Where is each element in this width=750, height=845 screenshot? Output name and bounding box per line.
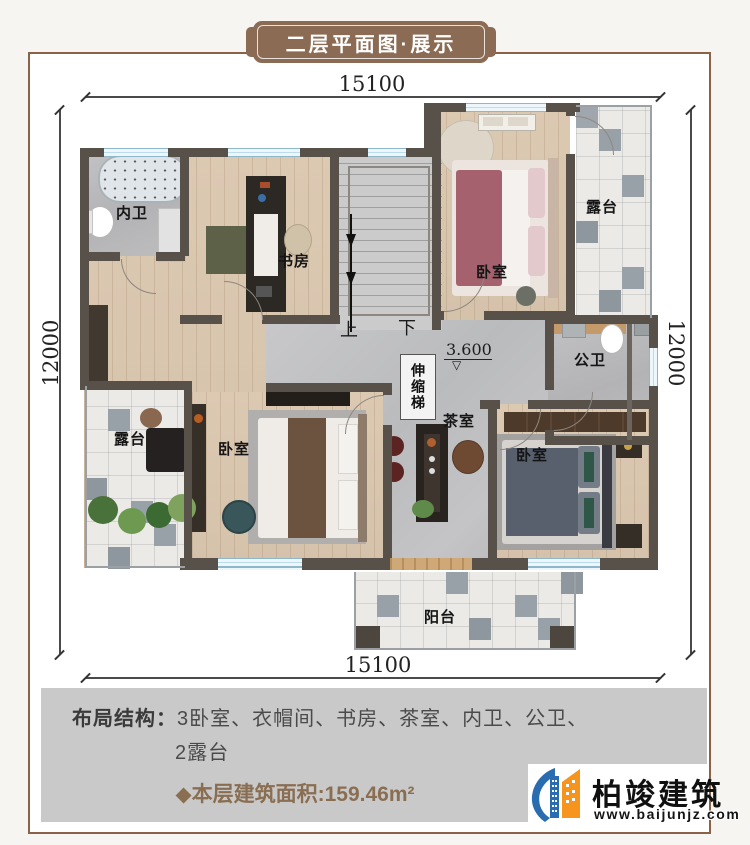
balcony-sliding-door — [390, 558, 472, 570]
wall — [156, 252, 185, 261]
dim-line-bottom — [85, 677, 660, 679]
wall — [600, 558, 658, 570]
dim-bottom-value: 15100 — [328, 653, 428, 677]
bed-tr-headboard — [548, 158, 558, 298]
tea-cup-2 — [429, 468, 435, 474]
stair-down-label: 下 — [398, 314, 416, 340]
console-item — [194, 414, 203, 423]
stair-up-label: 上 — [340, 316, 358, 342]
wall — [184, 386, 192, 568]
bed-tr-pillow-2 — [528, 226, 545, 276]
terrace-bottom-left — [85, 386, 187, 568]
tea-chair — [452, 440, 484, 474]
stair-arrow-2 — [346, 272, 356, 285]
balcony-border — [574, 572, 576, 650]
bed-bl-pillow-2 — [338, 480, 358, 530]
wall — [180, 152, 189, 256]
wall — [566, 154, 575, 320]
bed-br-headboard — [602, 436, 612, 548]
terrace-bench — [146, 428, 186, 472]
wall — [330, 152, 339, 324]
balcony-post-right — [550, 626, 574, 648]
window — [218, 558, 302, 570]
wall — [545, 315, 554, 390]
dresser-bl — [266, 392, 350, 406]
ladder-box: 伸缩梯 — [400, 354, 436, 420]
wall-partition — [627, 324, 632, 440]
terrace-border — [576, 105, 652, 107]
balcony-border — [354, 648, 576, 650]
plant-2 — [118, 508, 146, 534]
room-label-bath-private: 内卫 — [116, 202, 148, 223]
stair-arrow-1 — [346, 234, 356, 247]
wall — [383, 383, 392, 395]
desk-top-panel — [254, 214, 278, 276]
wall — [84, 381, 192, 390]
dresser-drawer-2 — [508, 117, 528, 126]
tile-spots-balcony — [377, 595, 399, 617]
layout-structure-line: 布局结构：3卧室、衣帽间、书房、茶室、内卫、公卫、 — [72, 702, 588, 731]
teapot — [427, 438, 436, 447]
wall — [180, 315, 222, 324]
pillow-accent-1 — [584, 452, 594, 482]
wall — [302, 558, 390, 570]
dim-right-value: 12000 — [664, 308, 688, 398]
desk-item-blue — [258, 194, 266, 202]
terrace-pouf — [140, 408, 162, 428]
ladder-label: 伸缩梯 — [408, 363, 428, 411]
stair-railing — [348, 166, 430, 316]
wall — [80, 252, 120, 261]
room-label-study: 书房 — [278, 250, 310, 271]
study-rug — [206, 226, 246, 274]
title-banner: 二层平面图·展示 — [253, 21, 489, 63]
wall — [80, 148, 89, 390]
plant-1 — [88, 496, 118, 524]
dim-left-value: 12000 — [39, 308, 63, 398]
tea-cup-1 — [429, 456, 435, 462]
desk-item-gray — [256, 286, 272, 297]
room-label-terrace-tr: 露台 — [586, 196, 618, 217]
elevation-triangle: ▽ — [452, 358, 461, 372]
company-logo: 柏竣建筑 www.baijunjz.com — [528, 762, 750, 826]
window — [528, 558, 600, 570]
elevation-label: 3.600 — [446, 340, 492, 359]
room-label-bedroom-br: 卧室 — [516, 444, 548, 465]
wall — [432, 311, 444, 320]
room-label-tea: 茶室 — [443, 410, 475, 431]
dresser-drawer-1 — [483, 117, 503, 126]
room-label-bath-public: 公卫 — [574, 349, 606, 370]
floor-area-text: ◆本层建筑面积:159.46m² — [90, 778, 500, 808]
room-label-bedroom-bl: 卧室 — [218, 438, 250, 459]
room-label-bedroom-tr: 卧室 — [476, 261, 508, 282]
company-logo-icon — [530, 764, 588, 824]
wall — [649, 436, 658, 568]
window — [649, 348, 658, 386]
wall — [566, 103, 575, 116]
bed-tr-pillow-1 — [528, 168, 545, 218]
terrace-border — [85, 386, 87, 568]
layout-rooms-line1: 3卧室、衣帽间、书房、茶室、内卫、公卫、 — [177, 708, 588, 730]
dim-top-value: 15100 — [322, 72, 422, 96]
shower-head — [634, 322, 650, 336]
wall — [266, 383, 392, 392]
wall — [528, 400, 658, 409]
room-label-balcony: 阳台 — [424, 606, 456, 627]
wall — [649, 315, 658, 348]
window — [104, 148, 168, 157]
tea-plant — [412, 500, 434, 518]
terrace-border — [650, 105, 652, 318]
balcony-post-left — [356, 626, 380, 648]
wall — [262, 315, 340, 324]
company-website: www.baijunjz.com — [594, 806, 740, 822]
wall — [488, 400, 497, 568]
wall — [545, 436, 658, 445]
window — [228, 148, 300, 157]
wall — [472, 558, 528, 570]
room-label-terrace-bl: 露台 — [114, 428, 146, 449]
dim-line-right — [690, 110, 692, 655]
layout-label: 布局结构： — [72, 708, 177, 730]
terrace-border — [85, 566, 185, 568]
dim-line-top — [85, 96, 660, 98]
wall — [383, 425, 392, 568]
balcony-border — [354, 572, 356, 650]
nightstand-br-2 — [616, 524, 642, 548]
bathtub — [98, 155, 188, 203]
bed-bl-blanket — [288, 418, 326, 538]
layout-rooms-line2: 2露台 — [175, 736, 229, 765]
window — [466, 103, 546, 112]
pillow-accent-2 — [584, 498, 594, 528]
desk-item-orange — [260, 182, 270, 188]
stool-tr — [516, 286, 536, 306]
lounge-chair-bl — [222, 500, 256, 534]
page-title: 二层平面图·展示 — [286, 28, 457, 57]
wall — [545, 315, 658, 324]
wall — [432, 112, 441, 330]
window — [368, 148, 406, 157]
